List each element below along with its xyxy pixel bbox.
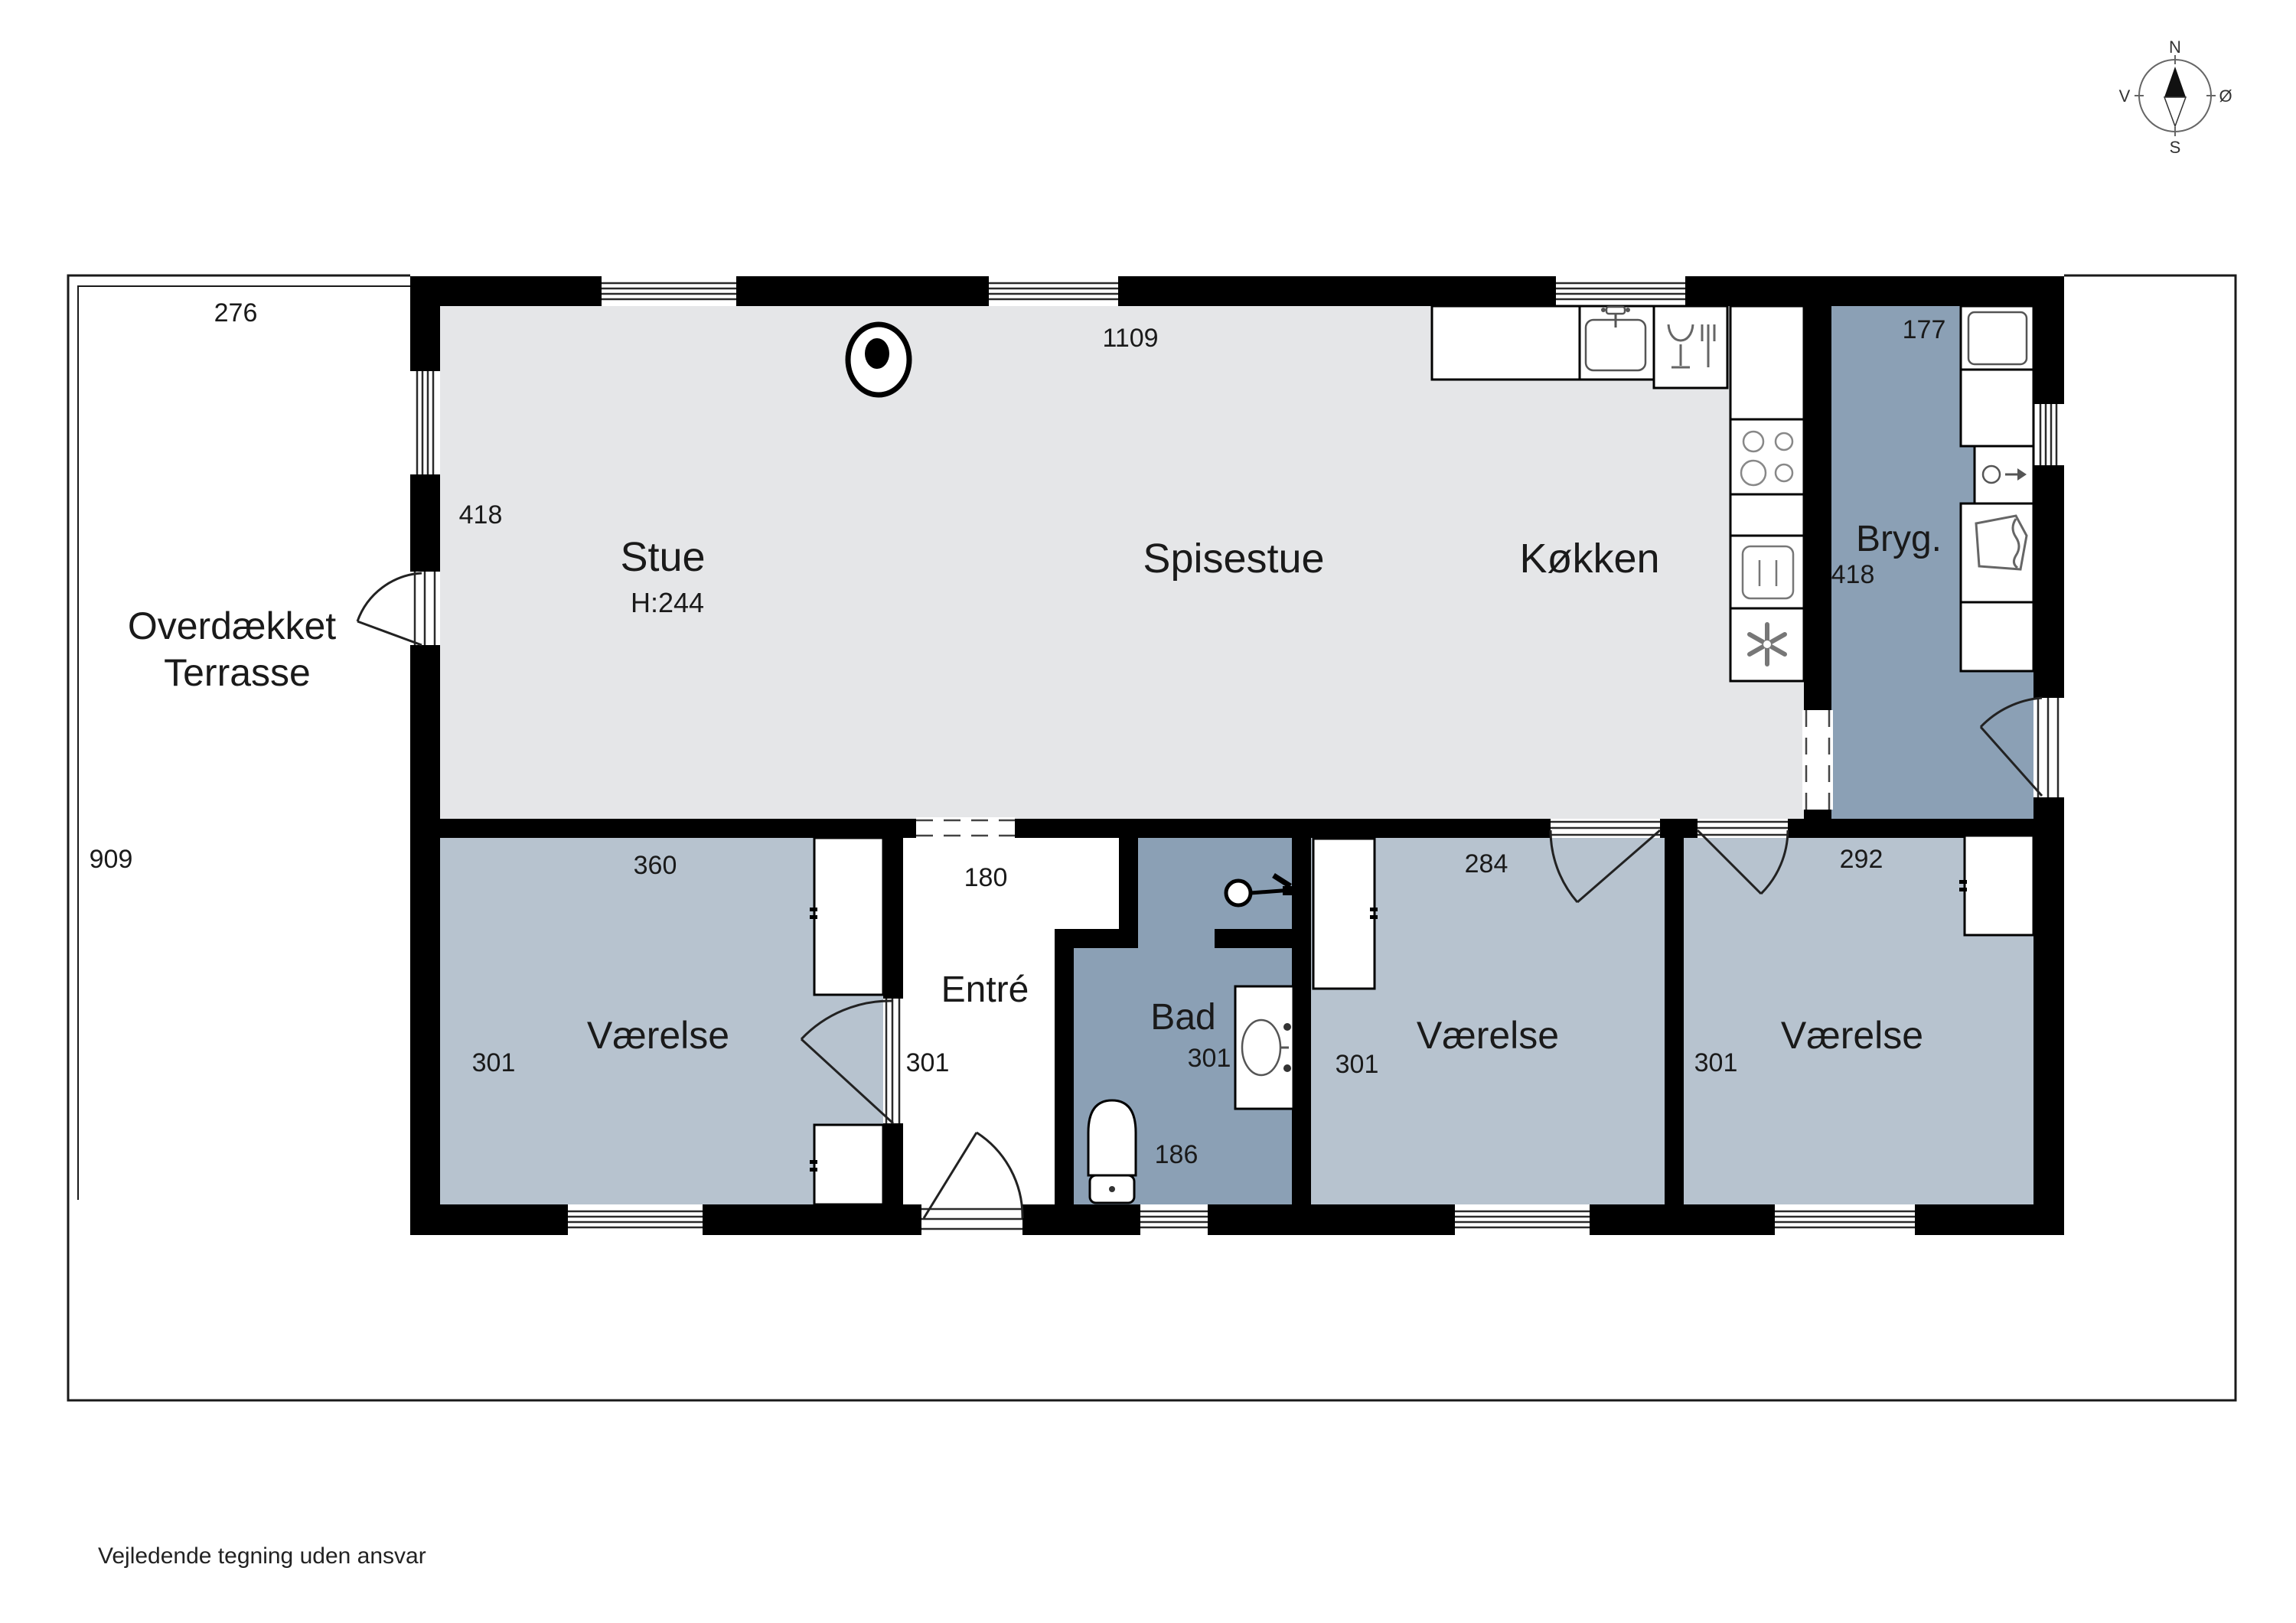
toilet-icon <box>1088 1100 1136 1203</box>
compass-east-label: Ø <box>2219 86 2232 106</box>
vanity-sink-icon <box>1235 986 1293 1109</box>
compass-rose-icon: N S V Ø <box>2119 37 2232 157</box>
terrace-label-line2: Terrasse <box>164 651 311 694</box>
bath-floor-passage <box>1138 929 1215 948</box>
terrace-dim-top: 276 <box>214 298 258 328</box>
wardrobe-icon <box>1959 836 2033 935</box>
window-icon <box>1455 1204 1590 1235</box>
bedroom3-dim-left: 301 <box>1694 1048 1738 1077</box>
living-dim-top: 1109 <box>1102 324 1158 353</box>
window-icon <box>410 371 440 474</box>
entre-opening-dim: 180 <box>964 863 1008 892</box>
window-icon <box>602 276 736 306</box>
ceiling-height-label: H:244 <box>631 587 704 618</box>
living-dim-left: 418 <box>459 500 503 530</box>
washing-machine-icon <box>1961 306 2033 370</box>
opening-dashed-entre <box>916 817 1015 839</box>
bedroom2-label: Værelse <box>1417 1014 1559 1057</box>
dishwasher-icon <box>1654 306 1727 388</box>
wardrobe-icon <box>810 1125 883 1204</box>
window-icon <box>1775 1204 1915 1235</box>
terrace-label-line1: Overdækket <box>128 605 336 647</box>
bath-label: Bad <box>1150 997 1215 1038</box>
bryggers-dim-top: 177 <box>1903 315 1946 344</box>
window-icon <box>1140 1204 1208 1235</box>
bedroom2-dim-left: 301 <box>1336 1050 1379 1079</box>
floor-plan: N S V Ø 276 Overdækket Terrasse 909 1109… <box>0 0 2296 1623</box>
terrace-door <box>357 572 440 645</box>
kitchen-sink-icon <box>1580 306 1654 380</box>
wardrobe-icon <box>810 838 883 995</box>
wardrobe-icon <box>1313 839 1378 989</box>
window-icon <box>568 1204 703 1235</box>
bedroom1-label: Værelse <box>587 1014 729 1057</box>
bedroom1-dim-left: 301 <box>472 1048 516 1077</box>
living-room-label: Stue <box>620 534 705 580</box>
wood-stove-icon <box>848 324 909 395</box>
terrace-dim-left: 909 <box>90 845 133 874</box>
bryggers-dim-left: 418 <box>1831 560 1875 589</box>
window-icon <box>989 276 1118 306</box>
bedroom3-label: Værelse <box>1781 1014 1923 1057</box>
cooktop-burners-icon <box>1730 419 1804 494</box>
bath-floor-upper <box>1138 838 1292 929</box>
laundry-basket-icon <box>1961 504 2033 602</box>
bedroom1-dim-top: 360 <box>634 851 677 880</box>
bryggers-label: Bryg. <box>1856 519 1942 559</box>
kitchen-label: Køkken <box>1519 536 1659 582</box>
compass-south-label: S <box>2170 138 2181 157</box>
entre-label: Entré <box>941 970 1029 1010</box>
utility-sink-icon <box>1975 446 2033 504</box>
disclaimer-note: Vejledende tegning uden ansvar <box>98 1543 426 1569</box>
window-icon <box>2033 404 2064 465</box>
bedroom3-dim-top: 292 <box>1840 845 1883 874</box>
opening-dashed-bryggers <box>1802 710 1833 810</box>
entre-dim-left: 301 <box>906 1048 950 1077</box>
dining-room-label: Spisestue <box>1143 536 1324 582</box>
bedroom2-dim-top: 284 <box>1465 849 1508 878</box>
oven-icon <box>1730 536 1804 608</box>
floor-plan-page: N S V Ø 276 Overdækket Terrasse 909 1109… <box>0 0 2296 1623</box>
compass-west-label: V <box>2119 86 2131 106</box>
window-icon <box>1556 276 1685 306</box>
compass-north-label: N <box>2169 37 2181 57</box>
bath-dim-left: 301 <box>1188 1044 1231 1073</box>
freezer-fan-icon <box>1730 608 1804 681</box>
bath-dim-bottom: 186 <box>1155 1140 1199 1169</box>
